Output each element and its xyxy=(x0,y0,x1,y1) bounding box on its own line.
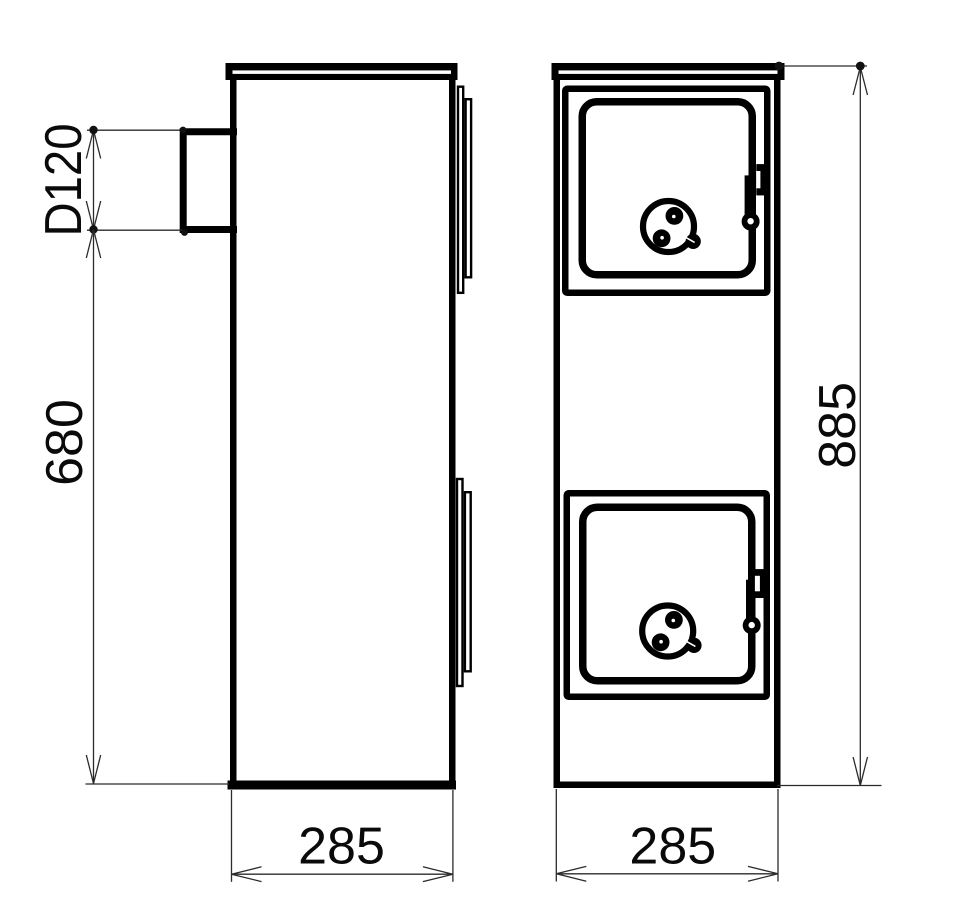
svg-text:680: 680 xyxy=(36,399,94,486)
svg-text:885: 885 xyxy=(809,382,867,469)
svg-text:285: 285 xyxy=(629,818,716,876)
svg-text:285: 285 xyxy=(298,818,385,876)
svg-text:D120: D120 xyxy=(35,124,93,237)
